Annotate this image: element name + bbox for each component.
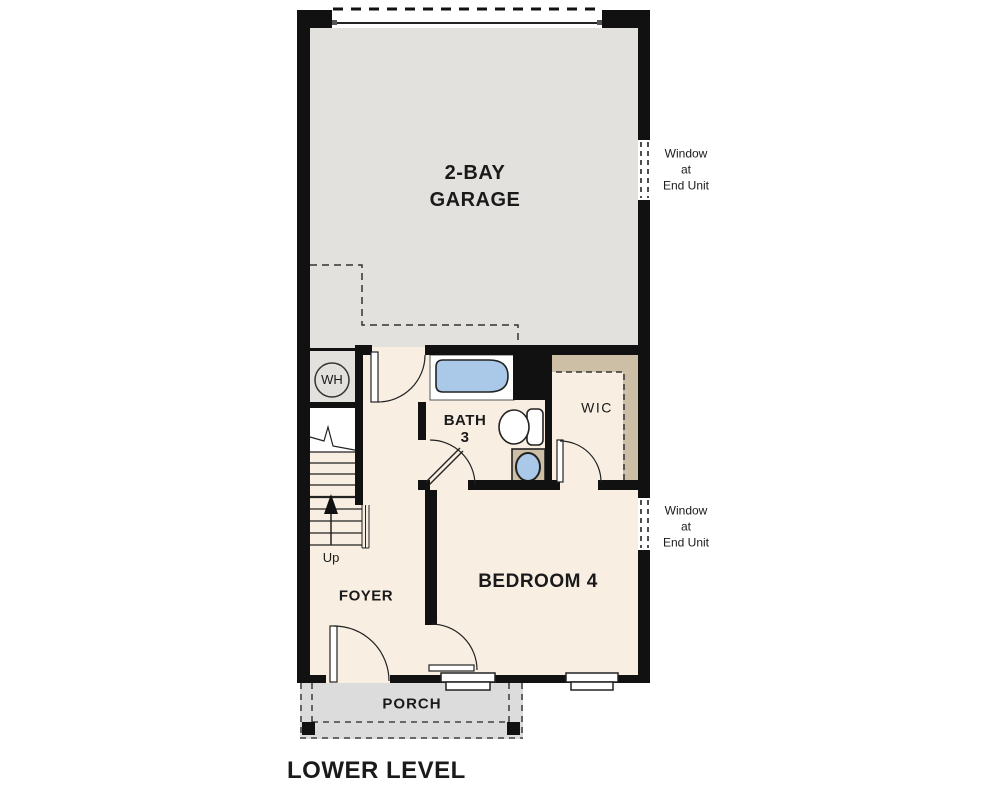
garage-door-end-right <box>597 20 602 25</box>
wall-garage-bottom-right <box>425 345 650 355</box>
bathtub <box>436 360 508 392</box>
wall-bath-door-stub <box>418 480 430 490</box>
wall-foyer-bedroom-divider <box>425 490 437 625</box>
garage-door-end-left <box>332 20 337 25</box>
wall-stair-right <box>355 345 363 505</box>
window-annotation-upper: Window at End Unit <box>663 146 709 195</box>
bedroom-label: BEDROOM 4 <box>478 569 598 595</box>
porch-label: PORCH <box>382 695 441 712</box>
toilet-bowl <box>499 410 529 444</box>
window-opening-right-lower <box>638 498 650 550</box>
garage-label-line2: GARAGE <box>430 187 521 214</box>
wall-bath-bottom <box>468 480 560 490</box>
foyer-label: FOYER <box>339 587 393 604</box>
wic-label: WIC <box>581 399 613 417</box>
bedroom-window-2-outer <box>566 673 618 682</box>
wall-wic-bottom <box>598 480 650 490</box>
garage-door-opening <box>332 10 602 28</box>
bath-label: BATH 3 <box>444 412 487 447</box>
bedroom-door-leaf <box>429 665 474 671</box>
porch-post-left <box>302 722 315 735</box>
wall-block-right-of-tub <box>513 355 545 400</box>
floorplan-page: 2-BAY GARAGE Window at End Unit Window a… <box>0 0 1000 800</box>
garage-label: 2-BAY GARAGE <box>430 160 521 214</box>
bedroom-window-2-inner <box>571 682 613 690</box>
floorplan-drawing <box>0 0 1000 800</box>
wall-bath-wic-divider <box>545 355 552 480</box>
water-heater-label: WH <box>321 372 343 388</box>
porch-post-right <box>507 722 520 735</box>
wall-hall-vertical <box>418 402 426 440</box>
stair-void <box>310 408 361 452</box>
wic-shelf-right <box>623 355 638 480</box>
wall-exterior-left <box>297 10 310 683</box>
page-title: LOWER LEVEL <box>287 757 466 785</box>
sink-basin <box>516 453 540 481</box>
wic-door-leaf <box>557 440 563 482</box>
bedroom-window-1-outer <box>441 673 495 682</box>
stairs-up-label: Up <box>323 550 340 566</box>
garage-entry-door-leaf <box>371 352 378 402</box>
front-door-leaf <box>330 626 337 682</box>
window-annotation-lower: Window at End Unit <box>663 503 709 552</box>
wall-wh-closet-bottom <box>297 402 363 408</box>
garage-label-line1: 2-BAY <box>430 160 521 187</box>
bedroom-window-1-inner <box>446 682 490 690</box>
